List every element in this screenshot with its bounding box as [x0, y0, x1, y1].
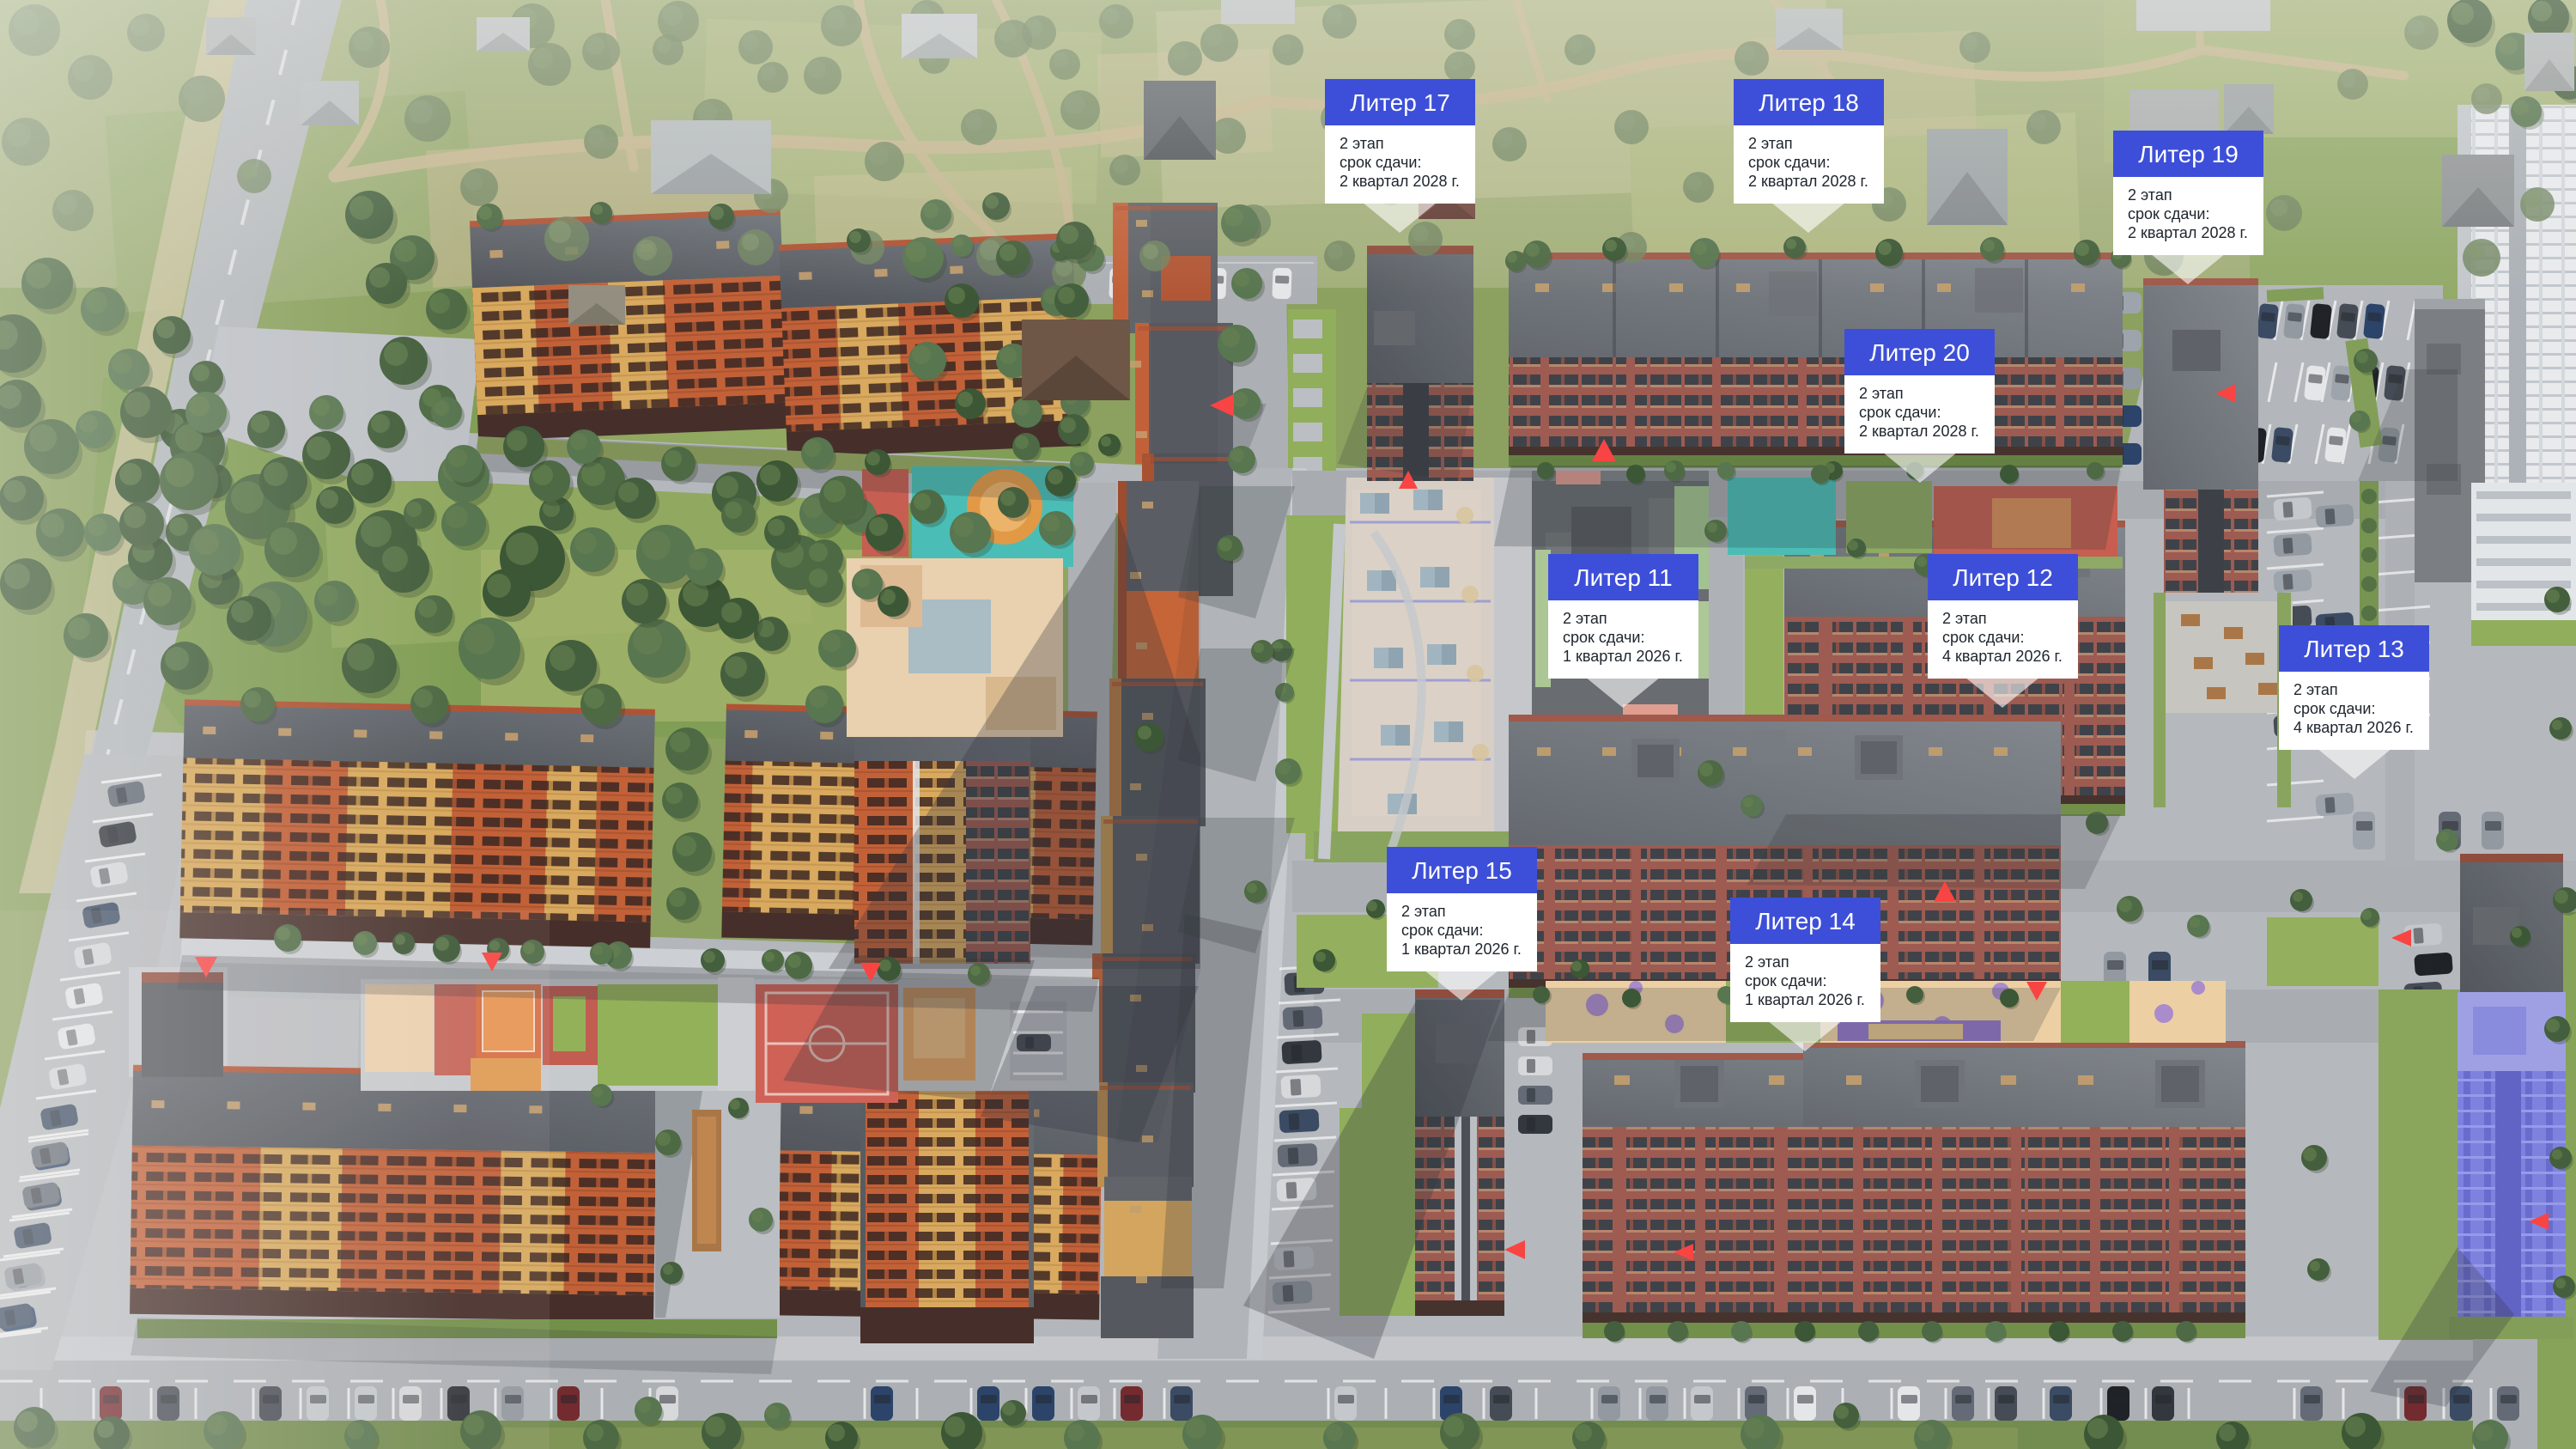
svg-text:срок сдачи:: срок сдачи: — [1340, 154, 1421, 171]
svg-text:срок сдачи:: срок сдачи: — [1745, 972, 1826, 989]
svg-text:2 квартал 2028 г.: 2 квартал 2028 г. — [2128, 224, 2248, 241]
svg-text:Литер 15: Литер 15 — [1412, 857, 1512, 884]
svg-text:Литер 17: Литер 17 — [1350, 89, 1450, 116]
svg-text:2 этап: 2 этап — [1401, 903, 1446, 920]
svg-text:срок сдачи:: срок сдачи: — [1859, 404, 1941, 421]
svg-text:срок сдачи:: срок сдачи: — [2293, 700, 2375, 717]
svg-text:2 этап: 2 этап — [2128, 186, 2172, 204]
svg-text:1 квартал 2026 г.: 1 квартал 2026 г. — [1745, 991, 1865, 1008]
svg-text:срок сдачи:: срок сдачи: — [1942, 629, 2024, 646]
svg-text:срок сдачи:: срок сдачи: — [1401, 922, 1483, 939]
svg-text:2 этап: 2 этап — [1859, 385, 1904, 402]
svg-text:2 этап: 2 этап — [1340, 135, 1384, 152]
svg-text:Литер 12: Литер 12 — [1953, 564, 2053, 591]
svg-text:Литер 13: Литер 13 — [2304, 636, 2404, 662]
svg-text:2 этап: 2 этап — [1745, 953, 1789, 971]
svg-text:2 квартал 2028 г.: 2 квартал 2028 г. — [1340, 173, 1460, 190]
svg-text:Литер 20: Литер 20 — [1869, 339, 1970, 366]
svg-text:2 этап: 2 этап — [1563, 610, 1607, 627]
svg-text:Литер 19: Литер 19 — [2138, 141, 2239, 167]
svg-text:срок сдачи:: срок сдачи: — [2128, 205, 2209, 222]
svg-text:1 квартал 2026 г.: 1 квартал 2026 г. — [1401, 941, 1522, 958]
svg-text:2 этап: 2 этап — [1748, 135, 1793, 152]
svg-text:2 этап: 2 этап — [1942, 610, 1987, 627]
svg-text:2 этап: 2 этап — [2293, 681, 2338, 698]
svg-text:4 квартал 2026 г.: 4 квартал 2026 г. — [1942, 648, 2063, 665]
svg-text:срок сдачи:: срок сдачи: — [1748, 154, 1830, 171]
svg-text:2 квартал 2028 г.: 2 квартал 2028 г. — [1748, 173, 1868, 190]
svg-text:Литер 11: Литер 11 — [1574, 564, 1673, 591]
svg-text:Литер 14: Литер 14 — [1755, 908, 1856, 935]
svg-text:4 квартал 2026 г.: 4 квартал 2026 г. — [2293, 719, 2414, 736]
svg-text:2 квартал 2028 г.: 2 квартал 2028 г. — [1859, 423, 1979, 440]
svg-text:срок сдачи:: срок сдачи: — [1563, 629, 1644, 646]
svg-text:Литер 18: Литер 18 — [1759, 89, 1859, 116]
svg-text:1 квартал 2026 г.: 1 квартал 2026 г. — [1563, 648, 1683, 665]
